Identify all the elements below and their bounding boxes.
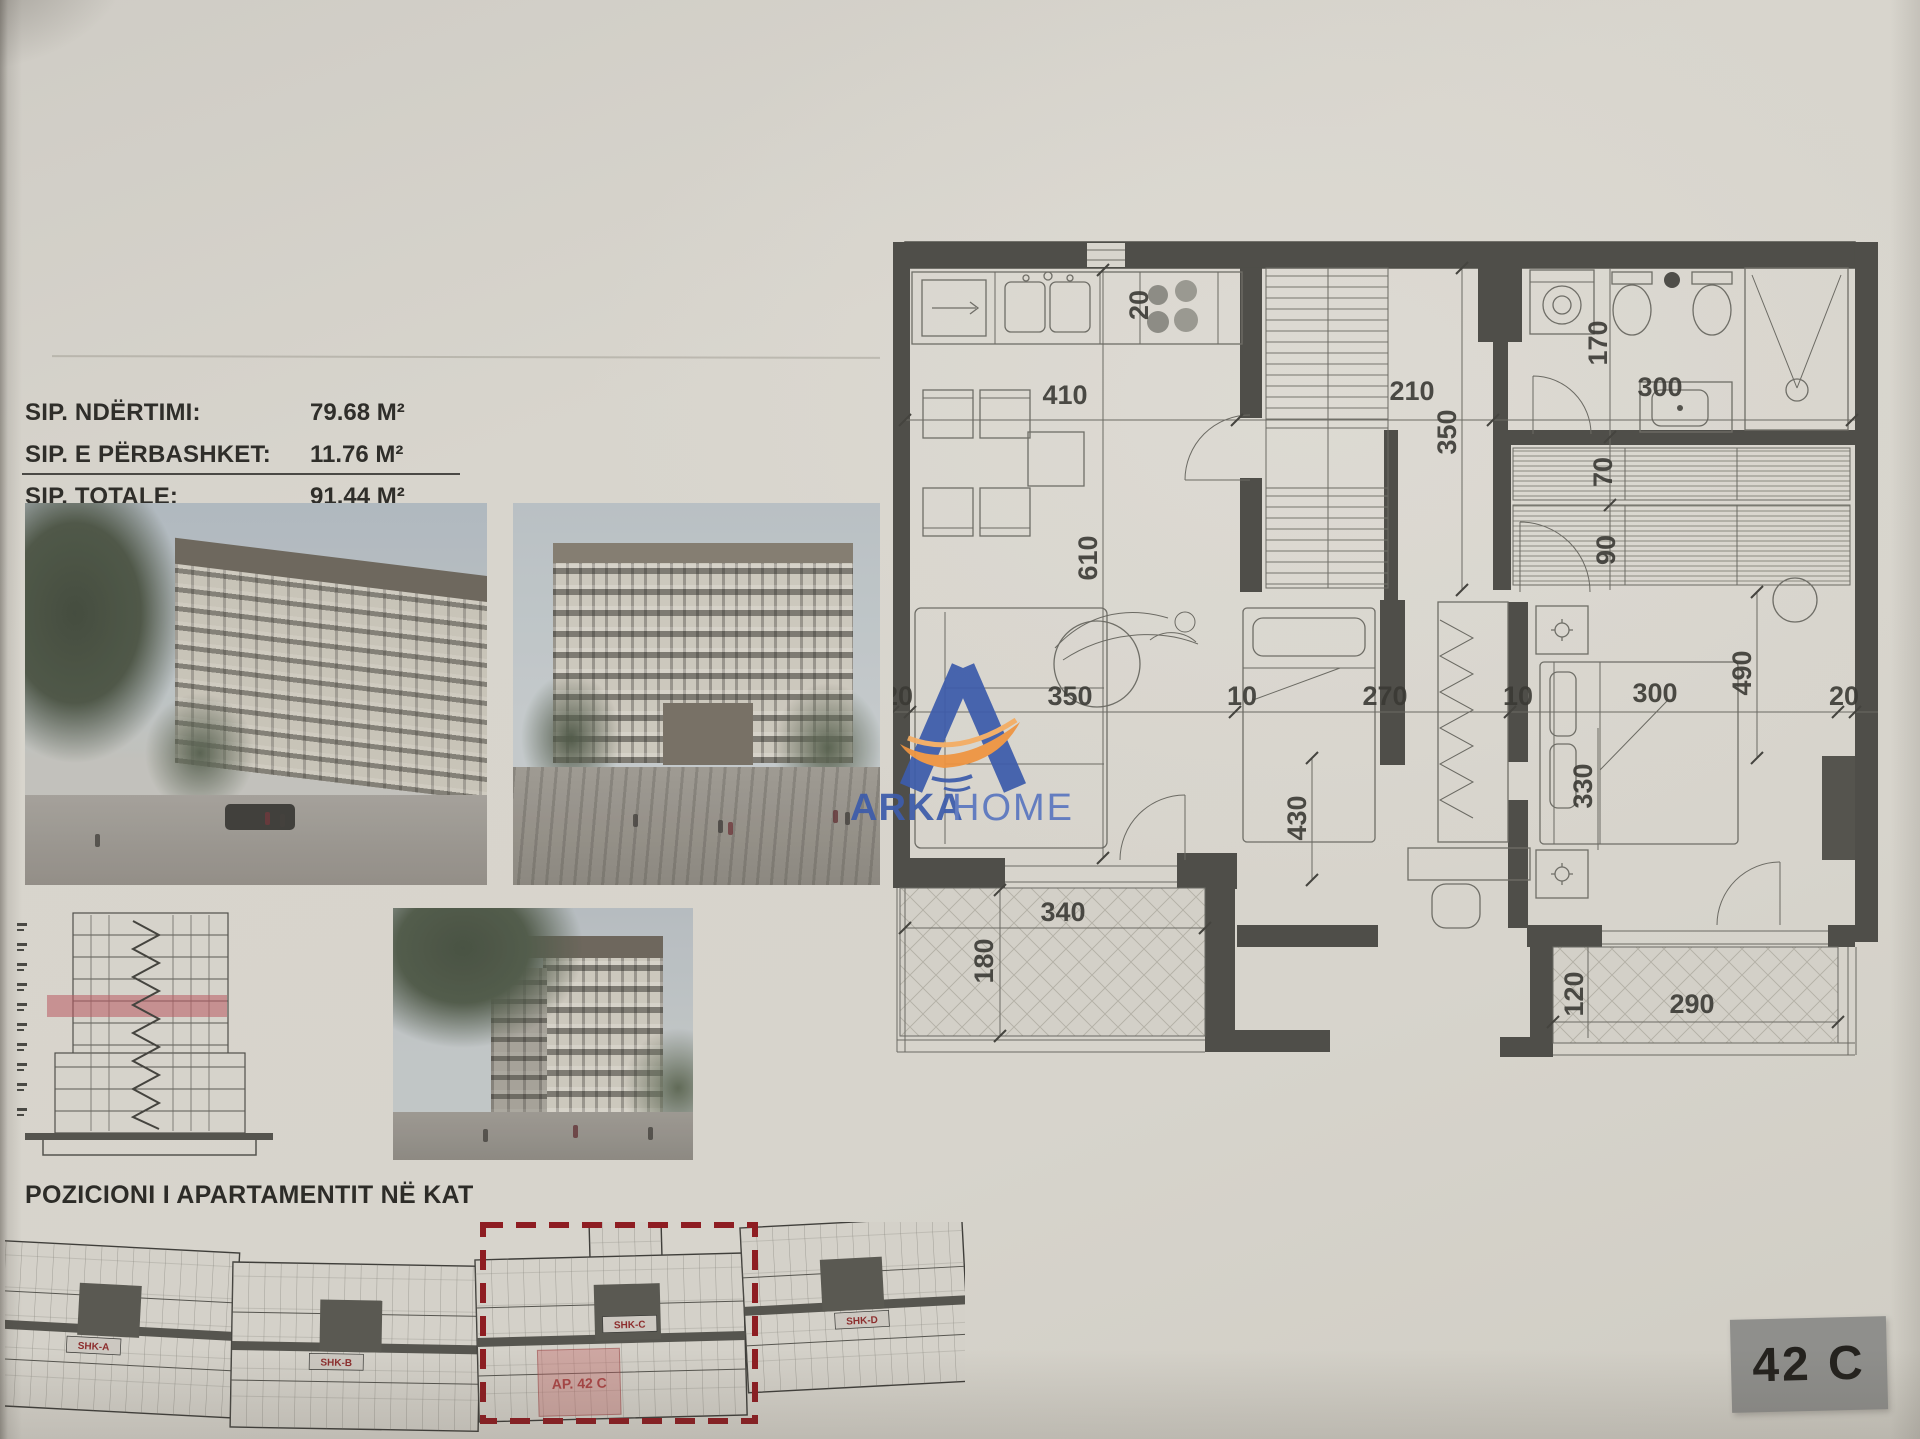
area-info-panel: SIP. NDËRTIMI: 79.68 M² SIP. E PËRBASHKE… — [25, 392, 455, 518]
stair-core — [1266, 268, 1388, 588]
building-section-drawing — [13, 903, 285, 1165]
dim: 330 — [1568, 763, 1598, 808]
wardrobe-icon — [1438, 602, 1508, 842]
door-arc — [1120, 795, 1185, 860]
level-markers — [17, 923, 27, 1116]
dim-stove: 20 — [1124, 290, 1154, 320]
stove-icon — [1147, 280, 1198, 333]
sum-divider — [22, 473, 460, 475]
fridge-icon — [922, 280, 986, 336]
entry-door — [1185, 415, 1250, 480]
dim: 70 — [1588, 457, 1618, 487]
render-corner-view — [393, 908, 693, 1160]
dim: 180 — [969, 938, 999, 983]
bidet-icon — [1692, 272, 1732, 335]
dim: 170 — [1583, 320, 1613, 365]
info-row: SIP. E PËRBASHKET: 11.76 M² — [25, 434, 455, 476]
dim: 300 — [1637, 372, 1682, 402]
highlighted-floor — [47, 995, 227, 1017]
logo-text-light: HOME — [952, 787, 1074, 828]
wing-c: SHK-C AP. 42 C — [474, 1222, 747, 1422]
position-heading: POZICIONI I APARTAMENTIT NË KAT — [25, 1181, 474, 1210]
dim: 410 — [1042, 380, 1087, 410]
floor-position-strip: SHK-A SHK-B SHK-C AP. 42 C — [5, 1222, 965, 1439]
apartment-label: AP. 42 C — [552, 1375, 607, 1392]
dim: 430 — [1282, 795, 1312, 840]
stair-label: SHK-A — [77, 1341, 109, 1354]
dim: 120 — [1559, 971, 1589, 1016]
area-value: 79.68 M² — [310, 399, 405, 427]
dim: 490 — [1727, 650, 1757, 695]
dim: 10 — [1227, 681, 1257, 711]
wing-b: SHK-B — [230, 1262, 481, 1431]
door-arc — [1533, 376, 1591, 434]
wing-d: SHK-D — [740, 1222, 965, 1393]
hall-closets — [1513, 448, 1850, 592]
logo-mark-a-icon — [900, 668, 1020, 790]
kitchen: 20 — [912, 272, 1242, 344]
stair-label: SHK-B — [320, 1358, 352, 1370]
bathroom — [1612, 268, 1848, 432]
dim: 340 — [1040, 897, 1085, 927]
property-sheet: SIP. NDËRTIMI: 79.68 M² SIP. E PËRBASHKE… — [0, 0, 1920, 1439]
area-label: SIP. E PËRBASHKET: — [25, 441, 310, 469]
paper-crease — [52, 355, 880, 359]
dim: 350 — [1432, 409, 1462, 454]
drain-icon — [1664, 272, 1680, 288]
render-street-view — [25, 503, 487, 885]
dining-set — [923, 390, 1084, 536]
nightstand-icon — [1536, 606, 1588, 654]
render-plaza-view — [513, 503, 880, 885]
ground-bar — [25, 1133, 273, 1140]
dim: 210 — [1389, 376, 1434, 406]
roofline — [553, 543, 853, 563]
dim: 290 — [1669, 989, 1714, 1019]
dim: 610 — [1073, 535, 1103, 580]
shower-icon — [1745, 268, 1848, 430]
basement-line — [43, 1140, 256, 1155]
entrance — [663, 703, 753, 765]
stair-label: SHK-D — [846, 1315, 878, 1328]
unit-badge-label: 42 C — [1752, 1336, 1867, 1394]
logo-text-bold: ARKA — [850, 787, 964, 828]
info-row: SIP. NDËRTIMI: 79.68 M² — [25, 392, 455, 434]
tv-unit-icon — [1822, 756, 1855, 860]
nightstand-icon — [1536, 850, 1588, 898]
door-arc — [1717, 862, 1780, 925]
wing-a: SHK-A — [5, 1240, 240, 1418]
dim: 90 — [1591, 535, 1621, 565]
dim: 20 — [1829, 681, 1859, 711]
area-value: 11.76 M² — [310, 441, 403, 469]
dim: 10 — [1503, 681, 1533, 711]
area-label: SIP. NDËRTIMI: — [25, 399, 310, 427]
unit-badge: 42 C — [1730, 1316, 1888, 1413]
stair-label: SHK-C — [614, 1320, 646, 1332]
sink-icon — [1005, 272, 1090, 332]
plaza — [513, 767, 880, 885]
lounge-sketch — [1055, 612, 1198, 660]
apartment-floor-plan: 20 — [893, 238, 1893, 1064]
dim: 300 — [1632, 678, 1677, 708]
dim: 270 — [1362, 681, 1407, 711]
master-bedroom — [1536, 578, 1855, 925]
toilet-icon — [1612, 272, 1652, 335]
arka-home-logo: ARKA HOME — [848, 660, 1080, 828]
